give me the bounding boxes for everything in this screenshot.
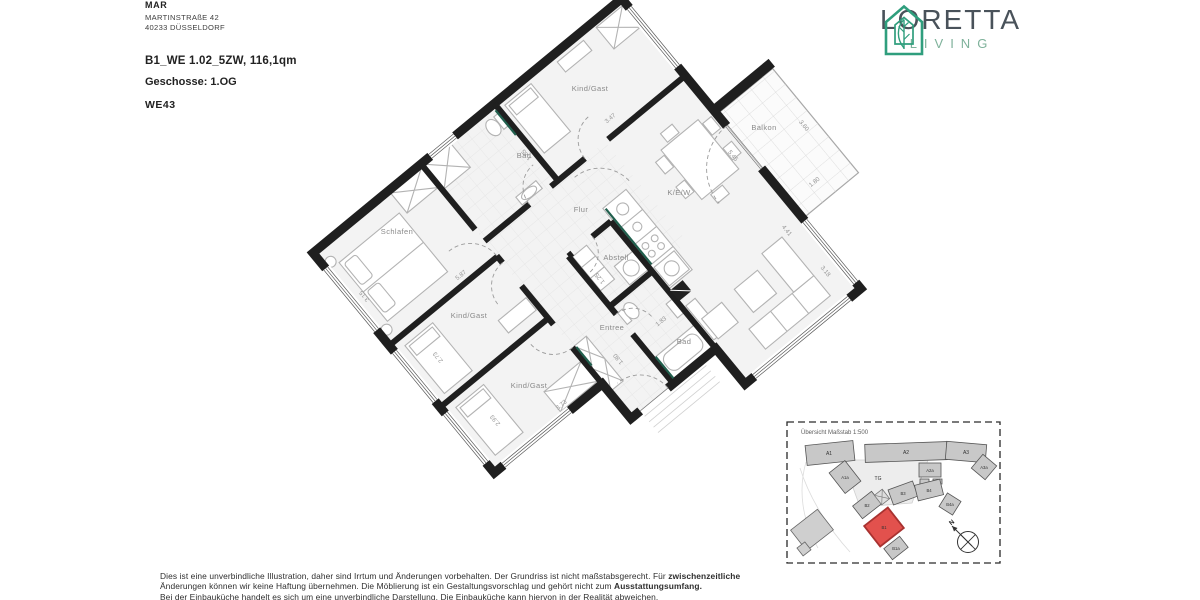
room-label-abstell: Abstell bbox=[603, 253, 628, 262]
room-label-schlafen: Schlafen bbox=[381, 227, 413, 236]
building-label-b1a: B1a bbox=[892, 546, 900, 551]
brochure-page: MAR MARTINSTRAßE 42 40233 DÜSSELDORF B1_… bbox=[0, 0, 1200, 600]
room-label-kind-gast-mid: Kind/Gast bbox=[451, 311, 488, 320]
building-label-tg: TG bbox=[875, 476, 882, 482]
floorplan-svg: 3.47 1.85 5.87 3.15 2.73 2.93 3.73 1.25 … bbox=[0, 0, 1200, 600]
building-label-b2: B2 bbox=[864, 503, 870, 508]
building-label-a2: A2 bbox=[903, 450, 909, 456]
disclaimer-line-3: Bei der Einbauküche handelt es sich um e… bbox=[160, 592, 748, 600]
building-label-b1: B1 bbox=[881, 525, 887, 530]
building-label-a3: A3 bbox=[963, 450, 969, 456]
room-label-kew: K/E/W bbox=[667, 188, 691, 197]
building-label-a3a: A3a bbox=[980, 465, 988, 470]
building-label-b4a: B4a bbox=[946, 502, 954, 507]
room-label-balkon: Balkon bbox=[751, 123, 776, 132]
room-label-bad-top: Bad bbox=[517, 151, 532, 160]
room-label-entree: Entree bbox=[600, 323, 625, 332]
building-label-b4: B4 bbox=[926, 488, 932, 493]
inset-title: Übersicht Maßstab 1:500 bbox=[801, 429, 869, 436]
room-label-kind-gast-top: Kind/Gast bbox=[572, 84, 609, 93]
disclaimer-line-1: Dies ist eine unverbindliche Illustratio… bbox=[160, 571, 748, 581]
building-label-b3: B3 bbox=[900, 491, 906, 496]
room-label-flur: Flur bbox=[574, 205, 589, 214]
room-label-kind-gast-bottom: Kind/Gast bbox=[511, 381, 548, 390]
disclaimer-line-2: Änderungen können wir keine Haftung über… bbox=[160, 581, 748, 591]
building-label-a2a: A2a bbox=[926, 468, 934, 473]
room-label-bad-bottom: Bad bbox=[677, 337, 692, 346]
disclaimer: Dies ist eine unverbindliche Illustratio… bbox=[160, 571, 748, 600]
building-label-a1a: A1a bbox=[841, 475, 849, 480]
site-overview: Übersicht Maßstab 1:500 TG bbox=[786, 422, 1000, 563]
building-label-a1: A1 bbox=[826, 451, 832, 457]
